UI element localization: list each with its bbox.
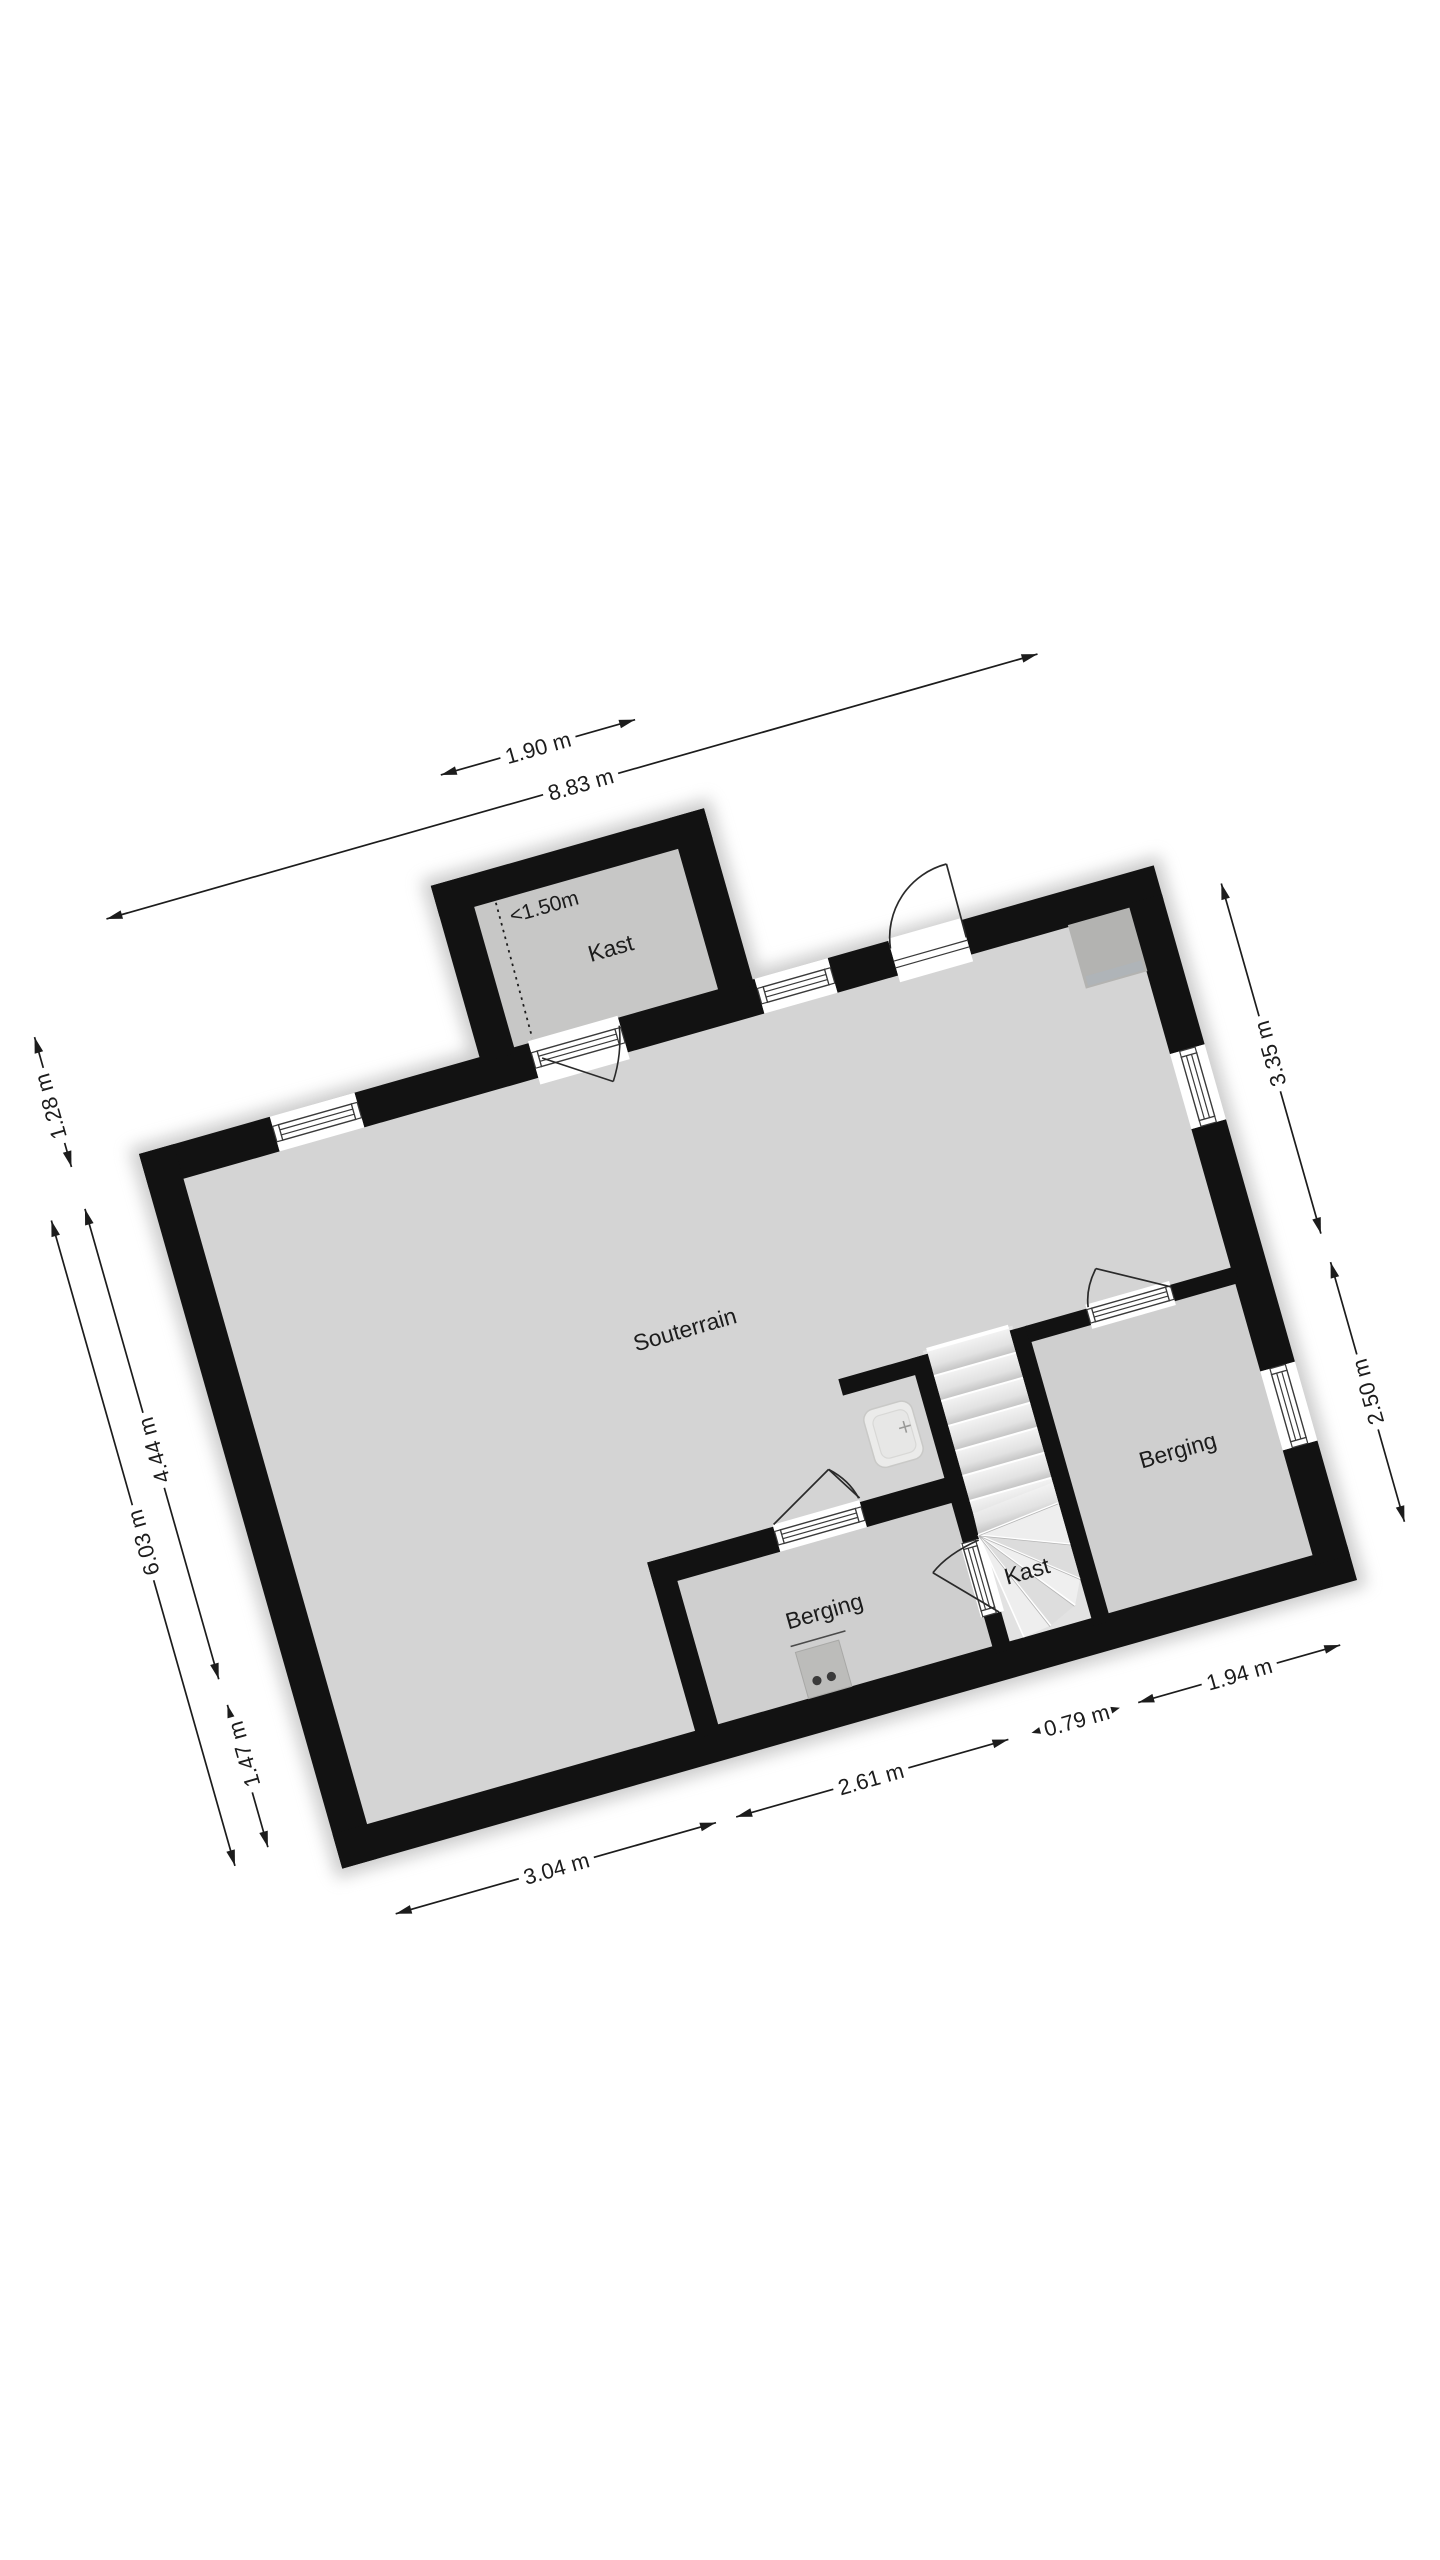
svg-text:1.47 m: 1.47 m [223, 1718, 265, 1790]
svg-text:8.83 m: 8.83 m [545, 763, 617, 805]
svg-text:0.79 m: 0.79 m [1041, 1699, 1113, 1741]
svg-text:1.94 m: 1.94 m [1204, 1653, 1276, 1695]
svg-text:3.04 m: 3.04 m [521, 1847, 593, 1889]
svg-text:4.44 m: 4.44 m [133, 1414, 175, 1486]
svg-text:6.03 m: 6.03 m [122, 1507, 164, 1579]
svg-text:1.90 m: 1.90 m [502, 727, 574, 769]
svg-text:3.35 m: 3.35 m [1249, 1018, 1291, 1090]
svg-text:2.50 m: 2.50 m [1347, 1356, 1389, 1428]
svg-text:2.61 m: 2.61 m [835, 1758, 907, 1800]
